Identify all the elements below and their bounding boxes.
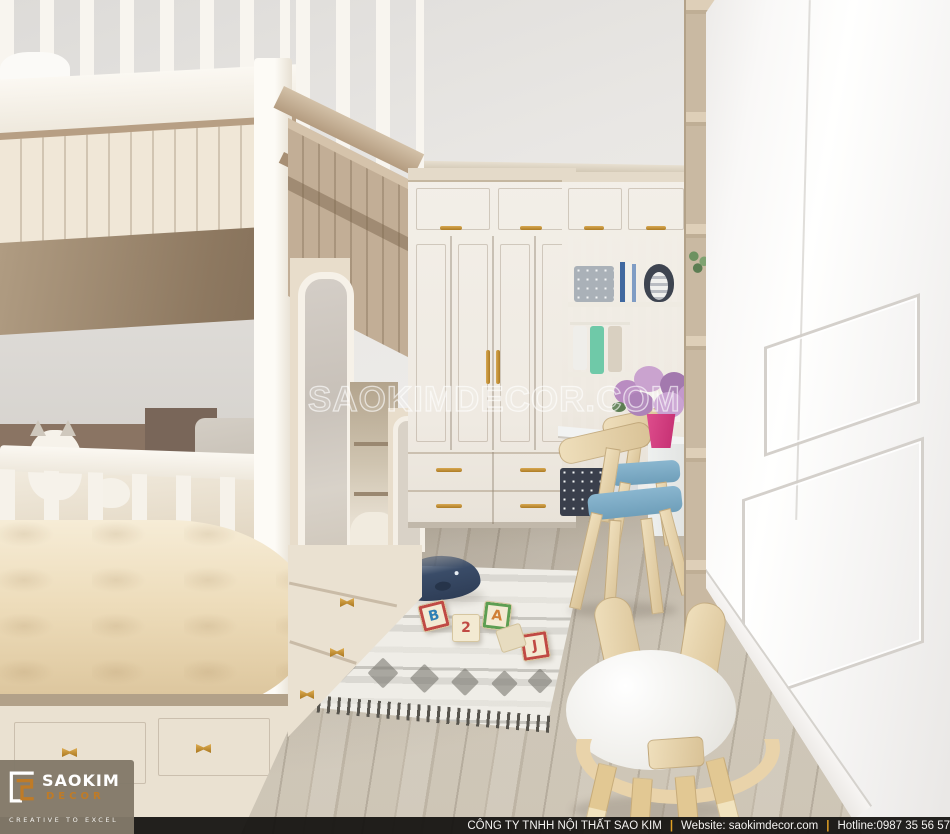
bedroom-render: B 2 A J [0,0,950,834]
cabinet-handle [440,226,462,230]
whale-fin [434,581,451,592]
block-letter: B [427,607,441,625]
saokim-logo-icon [8,771,36,803]
block-letter: 2 [461,620,471,636]
logo-brand-text: SAOKIM [42,771,120,790]
clothes-rail [570,322,630,325]
arch-pillar [290,258,350,588]
hanging-shirt [590,326,604,374]
books [632,264,636,302]
cabinet-handle [584,226,604,230]
upper-cabinet-door [498,188,570,230]
footer-separator: | [670,820,673,832]
cabinet-cornice [562,172,690,182]
cabinet-shelf [568,302,682,307]
wardrobe-handle [496,350,500,384]
footer-website: Website: saokimdecor.com [681,820,818,832]
toy-block: 2 [452,614,480,642]
upper-cabinet-door [416,188,490,230]
cabinet-top-door [568,188,622,230]
bunny-stool [556,588,756,834]
drawer-handle [520,468,546,472]
cabinet-top-door [628,188,684,230]
books [620,262,625,302]
footer-separator: | [826,820,829,832]
drawer-handle [436,504,462,508]
bench-mattress [0,520,312,712]
drawer-handle [520,504,546,508]
cabinet-handle [520,226,542,230]
drawer-handle [436,468,462,472]
drawer-line [289,640,357,664]
wainscot-molding-upper [764,293,920,457]
footer-bar: CÔNG TY TNHH NỘI THẤT SAO KIM | Website:… [0,817,950,834]
polka-dot-box [574,266,614,302]
hanging-shirt [573,326,587,370]
logo-tagline: CREATIVE TO EXCEL [9,816,118,824]
drawer-front [158,718,270,776]
footer-company: CÔNG TY TNHH NỘI THẤT SAO KIM [467,820,661,832]
brand-logo: SAOKIM DECOR CREATIVE TO EXCEL [0,760,134,834]
block-letter: J [531,638,539,655]
drawer-gap [492,452,494,524]
block-letter: A [491,607,504,624]
penguin-belly [650,272,668,300]
wardrobe-handle [486,350,490,384]
stool-ear-joint [647,736,705,770]
bunk2-band-shadow [288,176,425,260]
cabinet-handle [646,226,666,230]
watermark-text: SAOKIMDECOR.COM [308,380,681,420]
logo-sub-text: DECOR [46,791,105,802]
whale-eye [454,571,458,575]
footer-hotline: Hotline:0987 35 56 57 [837,820,950,832]
arch-frame [298,272,354,586]
bunk1-underside [0,225,296,335]
books [626,262,631,302]
wardrobe-cornice [408,168,576,182]
